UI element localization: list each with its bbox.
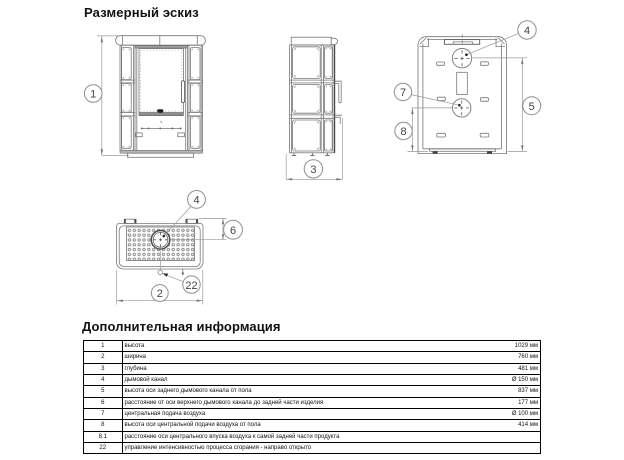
svg-text:5: 5 xyxy=(529,101,535,113)
svg-text:7: 7 xyxy=(400,87,406,99)
svg-text:1: 1 xyxy=(90,89,96,101)
svg-text:4: 4 xyxy=(193,195,199,207)
svg-text:6: 6 xyxy=(230,225,236,237)
svg-text:3: 3 xyxy=(310,164,316,176)
svg-text:4: 4 xyxy=(524,25,530,37)
svg-text:2: 2 xyxy=(157,288,163,300)
svg-text:22: 22 xyxy=(185,280,197,292)
svg-text:8: 8 xyxy=(400,126,406,138)
